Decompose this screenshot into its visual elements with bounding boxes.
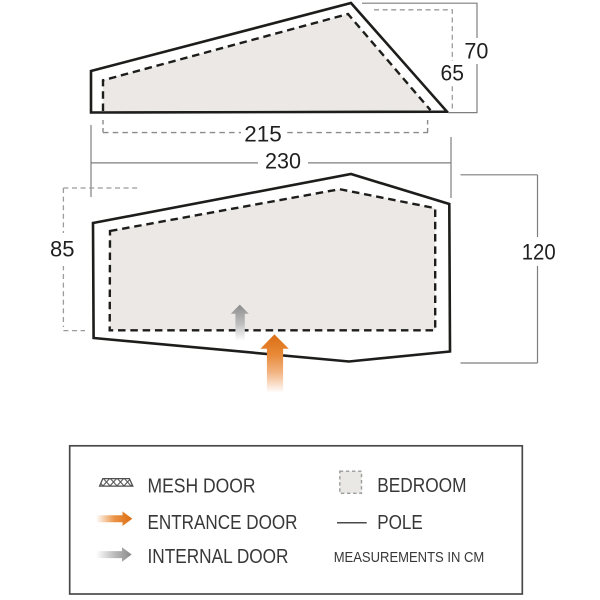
svg-text:BEDROOM: BEDROOM [377,475,466,497]
svg-text:230: 230 [265,148,301,173]
svg-text:ENTRANCE DOOR: ENTRANCE DOOR [148,512,298,534]
svg-text:MESH DOOR: MESH DOOR [148,476,256,498]
svg-text:215: 215 [244,121,282,146]
svg-text:65: 65 [441,61,464,86]
svg-text:INTERNAL DOOR: INTERNAL DOOR [148,546,289,568]
svg-text:120: 120 [522,239,556,264]
svg-text:70: 70 [464,38,488,63]
svg-text:MEASUREMENTS IN CM: MEASUREMENTS IN CM [334,550,485,566]
svg-text:POLE: POLE [377,512,423,534]
svg-text:85: 85 [50,236,75,261]
